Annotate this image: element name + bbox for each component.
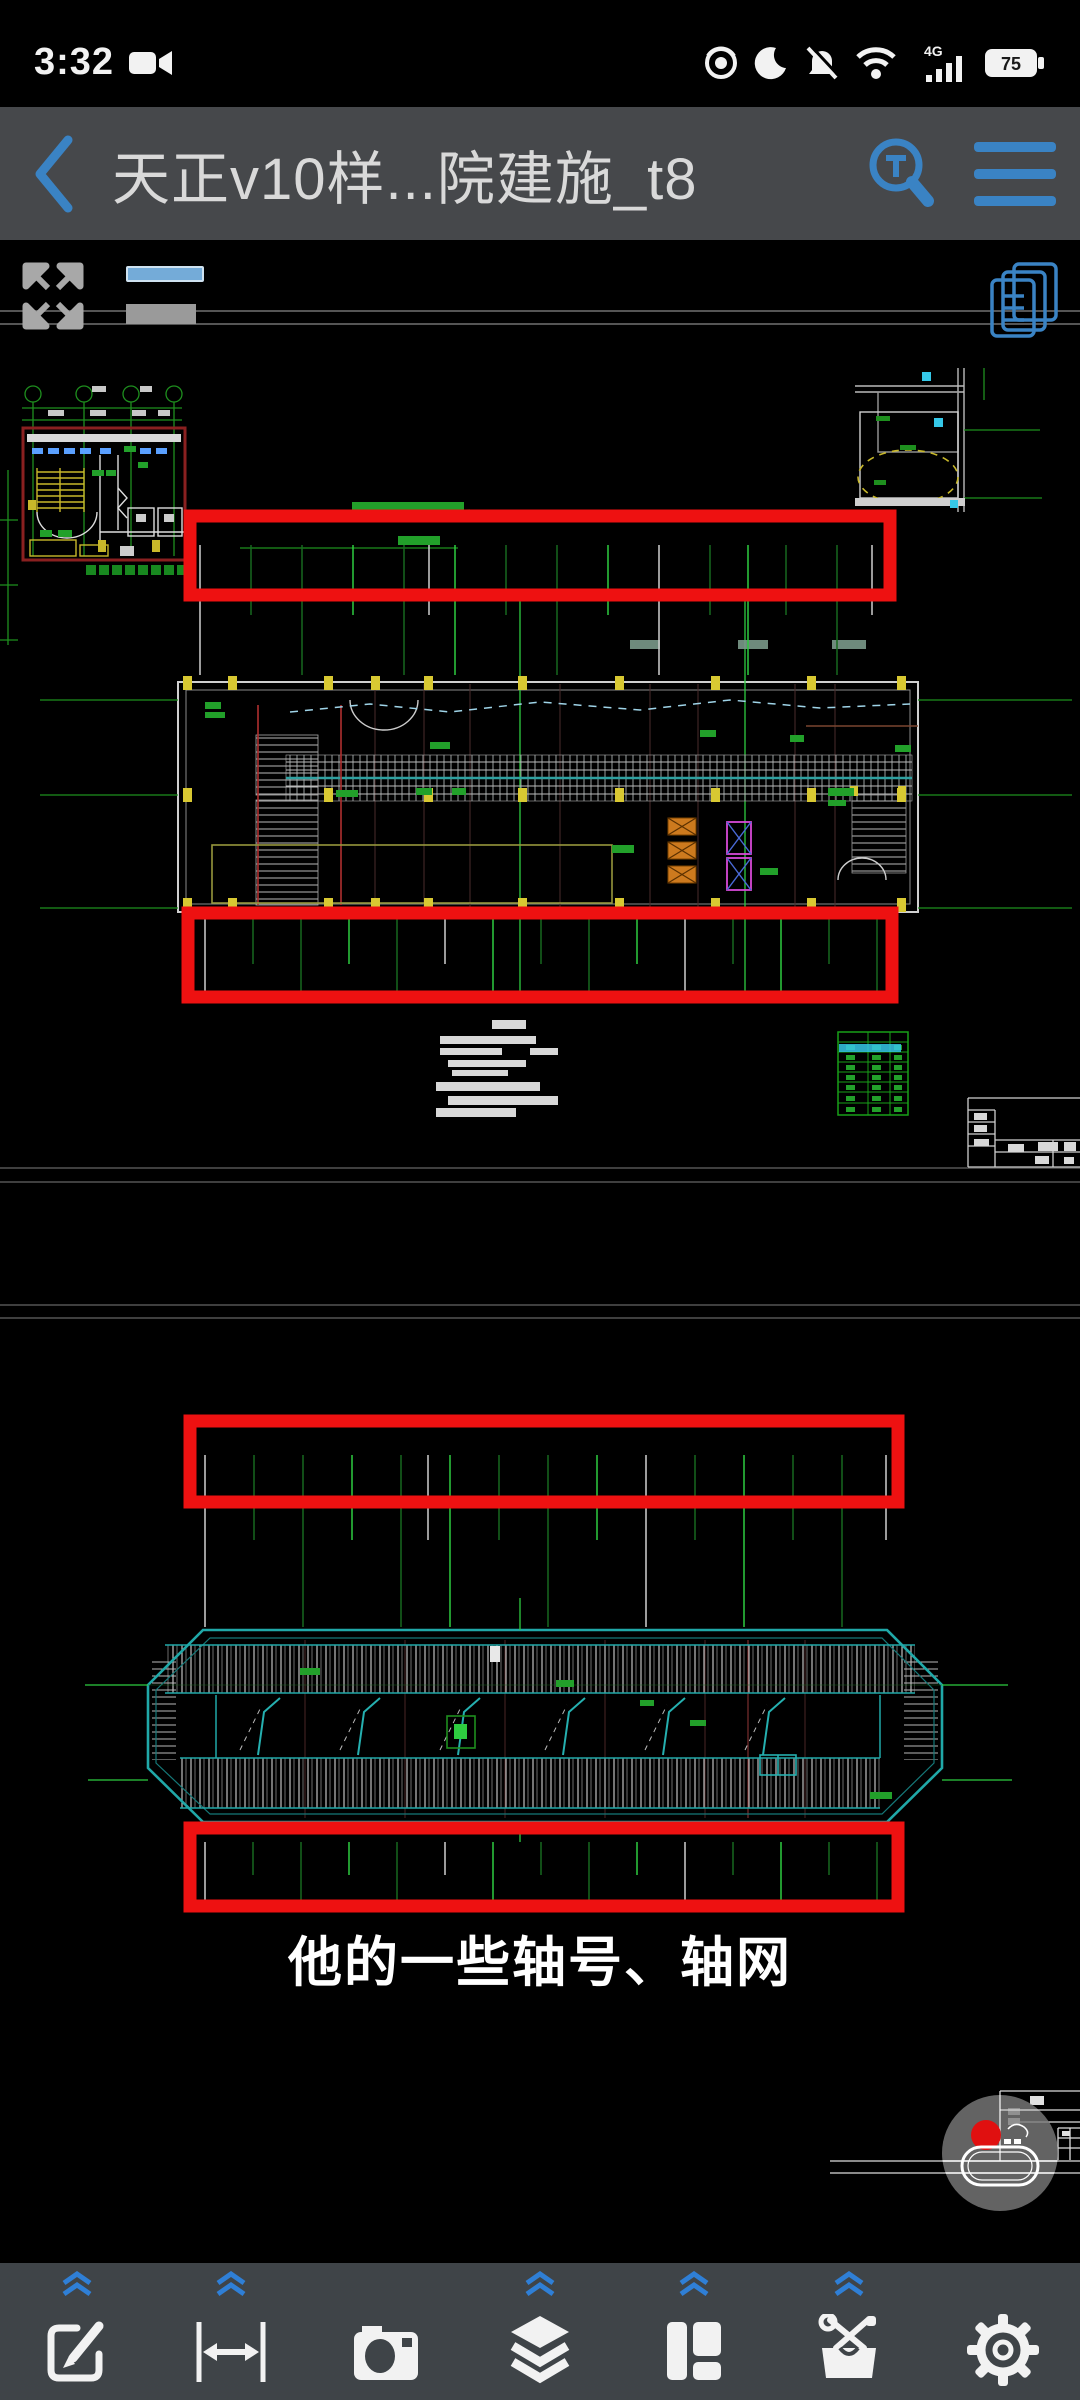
highlight-box	[190, 516, 890, 595]
mute-bell-icon	[804, 46, 840, 80]
chevron-up-icon	[214, 2271, 248, 2297]
do-not-disturb-moon-icon	[754, 46, 788, 80]
layout-icon	[659, 2316, 729, 2386]
back-button[interactable]	[22, 128, 86, 220]
drawing-canvas[interactable]: 他的一些轴号、轴网	[0, 240, 1080, 2263]
camera-button[interactable]	[309, 2263, 463, 2400]
measure-button[interactable]	[154, 2263, 308, 2400]
notes-text-block	[436, 1020, 558, 1117]
highlight-box	[190, 1421, 898, 1502]
cad-viewer-app: 3:32	[0, 0, 1080, 2400]
wifi-icon	[856, 47, 896, 79]
layout-button[interactable]	[617, 2263, 771, 2400]
floating-preview-widget[interactable]	[942, 2095, 1058, 2211]
edit-icon	[43, 2318, 111, 2386]
pages-icon	[986, 260, 1062, 340]
chevron-up-icon	[677, 2271, 711, 2297]
back-chevron-icon	[32, 134, 76, 214]
layouts-pages-button[interactable]	[986, 260, 1062, 340]
title-block-sheet1	[968, 1098, 1080, 1167]
roof-plan	[85, 1598, 1012, 1842]
scale-toggle-widget[interactable]	[126, 266, 206, 330]
menu-button[interactable]	[972, 138, 1058, 210]
text-search-button[interactable]	[864, 135, 938, 213]
chevron-up-icon	[523, 2271, 557, 2297]
layers-button[interactable]	[463, 2263, 617, 2400]
orange-fixtures	[668, 818, 696, 883]
scale-active-bar	[126, 266, 204, 282]
title-actions	[864, 135, 1058, 213]
network-type-label: 4G	[924, 43, 943, 59]
scale-inactive-bar	[126, 304, 196, 324]
signal-bars-icon: 4G	[912, 43, 968, 83]
preview-content	[942, 2095, 1058, 2211]
fullscreen-icon	[18, 260, 88, 332]
gear-icon	[967, 2314, 1039, 2386]
document-title: 天正v10样...院建施_t8	[112, 132, 698, 216]
layers-icon	[505, 2312, 575, 2386]
eye-comfort-icon	[704, 46, 738, 80]
camera-icon	[348, 2318, 424, 2386]
table-highlight-text	[839, 1044, 901, 1052]
highlight-box	[188, 913, 892, 997]
screen-record-icon	[128, 47, 174, 79]
battery-percent-label: 75	[1001, 54, 1021, 74]
main-floor-plan	[40, 600, 1072, 995]
status-right: 4G 75	[704, 43, 1046, 83]
measure-icon	[193, 2318, 269, 2386]
battery-icon: 75	[984, 46, 1046, 80]
toolbox-icon	[812, 2314, 886, 2386]
status-bar: 3:32	[0, 0, 1080, 107]
clock: 3:32	[34, 41, 114, 84]
detail-plan-top-right	[855, 368, 1042, 512]
settings-button[interactable]	[926, 2263, 1080, 2400]
fullscreen-button[interactable]	[18, 260, 88, 332]
edit-button[interactable]	[0, 2263, 154, 2400]
toolbox-button[interactable]	[771, 2263, 925, 2400]
highlight-box	[190, 1828, 898, 1906]
title-bar: 天正v10样...院建施_t8	[0, 107, 1080, 240]
bottom-toolbar	[0, 2263, 1080, 2400]
chevron-up-icon	[832, 2271, 866, 2297]
status-left: 3:32	[34, 41, 174, 84]
magenta-fixtures	[727, 822, 751, 890]
video-caption: 他的一些轴号、轴网	[0, 1918, 1080, 1997]
schedule-table	[838, 1032, 908, 1115]
detail-plan-caption-text	[86, 565, 187, 575]
chevron-up-icon	[60, 2271, 94, 2297]
highlight-annotations	[188, 516, 898, 1906]
